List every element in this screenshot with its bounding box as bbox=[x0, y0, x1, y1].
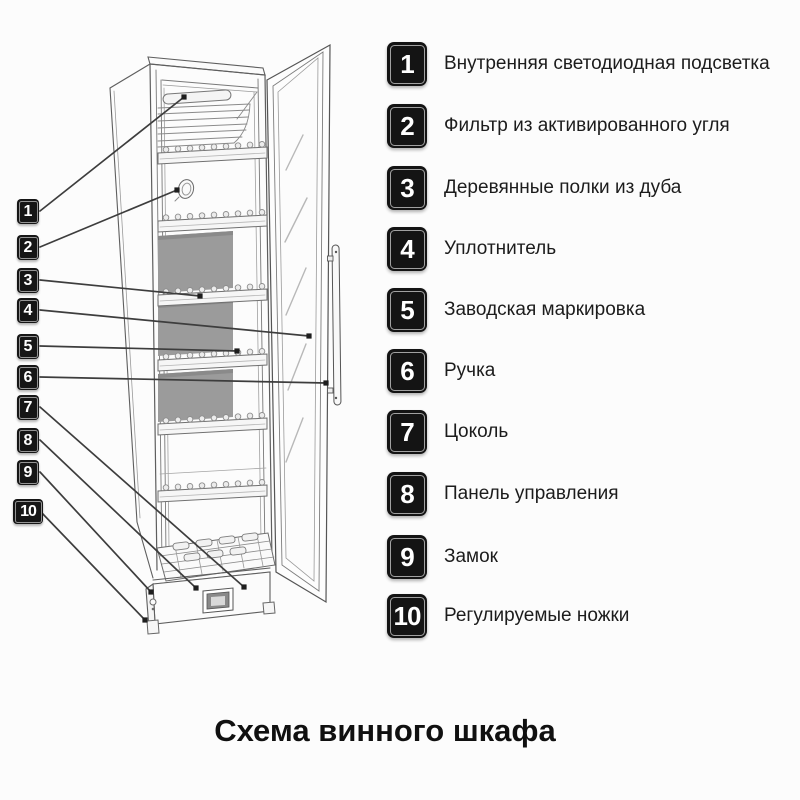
legend-number-badge: 8 bbox=[387, 472, 427, 516]
callout-badge-5: 5 bbox=[17, 334, 39, 359]
legend-label: Заводская маркировка bbox=[444, 299, 645, 321]
legend-label: Замок bbox=[444, 546, 498, 568]
legend-number-badge: 5 bbox=[387, 288, 427, 332]
legend-label: Регулируемые ножки bbox=[444, 605, 629, 627]
legend-item: 7 Цоколь bbox=[387, 410, 508, 454]
legend-label: Ручка bbox=[444, 360, 495, 382]
callout-badge-3: 3 bbox=[17, 268, 39, 293]
callout-badge-6: 6 bbox=[17, 365, 39, 390]
legend-number-badge: 2 bbox=[387, 104, 427, 148]
legend-item: 2 Фильтр из активированного угля bbox=[387, 104, 730, 148]
legend-item: 6 Ручка bbox=[387, 349, 495, 393]
control-panel bbox=[203, 588, 233, 613]
callout-badge-8: 8 bbox=[17, 428, 39, 453]
back-panels bbox=[158, 231, 233, 422]
led-light bbox=[163, 90, 232, 105]
diagram-canvas: 1 2 3 4 5 6 7 8 9 10 1 Внутренняя светод… bbox=[0, 0, 800, 800]
callout-badge-2: 2 bbox=[17, 235, 39, 260]
legend-item: 5 Заводская маркировка bbox=[387, 288, 645, 332]
legend-label: Панель управления bbox=[444, 483, 619, 505]
door-handle bbox=[328, 245, 341, 405]
legend-label: Внутренняя светодиодная подсветка bbox=[444, 53, 770, 75]
legend-item: 3 Деревянные полки из дуба bbox=[387, 166, 681, 210]
legend-number-badge: 7 bbox=[387, 410, 427, 454]
legend-label: Фильтр из активированного угля bbox=[444, 115, 730, 137]
legend-item: 10 Регулируемые ножки bbox=[387, 594, 629, 638]
legend-number-badge: 4 bbox=[387, 227, 427, 271]
legend-item: 9 Замок bbox=[387, 535, 498, 579]
legend-number-badge: 6 bbox=[387, 349, 427, 393]
legend-item: 4 Уплотнитель bbox=[387, 227, 556, 271]
legend-number-badge: 10 bbox=[387, 594, 427, 638]
legend-number-badge: 9 bbox=[387, 535, 427, 579]
callout-badge-1: 1 bbox=[17, 199, 39, 224]
legend-item: 8 Панель управления bbox=[387, 472, 619, 516]
callout-badge-7: 7 bbox=[17, 395, 39, 420]
legend-label: Уплотнитель bbox=[444, 238, 556, 260]
callout-badge-4: 4 bbox=[17, 298, 39, 323]
callout-badge-10: 10 bbox=[13, 499, 43, 524]
glass-door bbox=[267, 45, 330, 602]
legend-label: Деревянные полки из дуба bbox=[444, 177, 681, 199]
legend-label: Цоколь bbox=[444, 421, 508, 443]
callout-badge-9: 9 bbox=[17, 460, 39, 485]
legend-number-badge: 1 bbox=[387, 42, 427, 86]
legend-item: 1 Внутренняя светодиодная подсветка bbox=[387, 42, 770, 86]
legend-number-badge: 3 bbox=[387, 166, 427, 210]
diagram-title: Схема винного шкафа bbox=[0, 713, 770, 749]
